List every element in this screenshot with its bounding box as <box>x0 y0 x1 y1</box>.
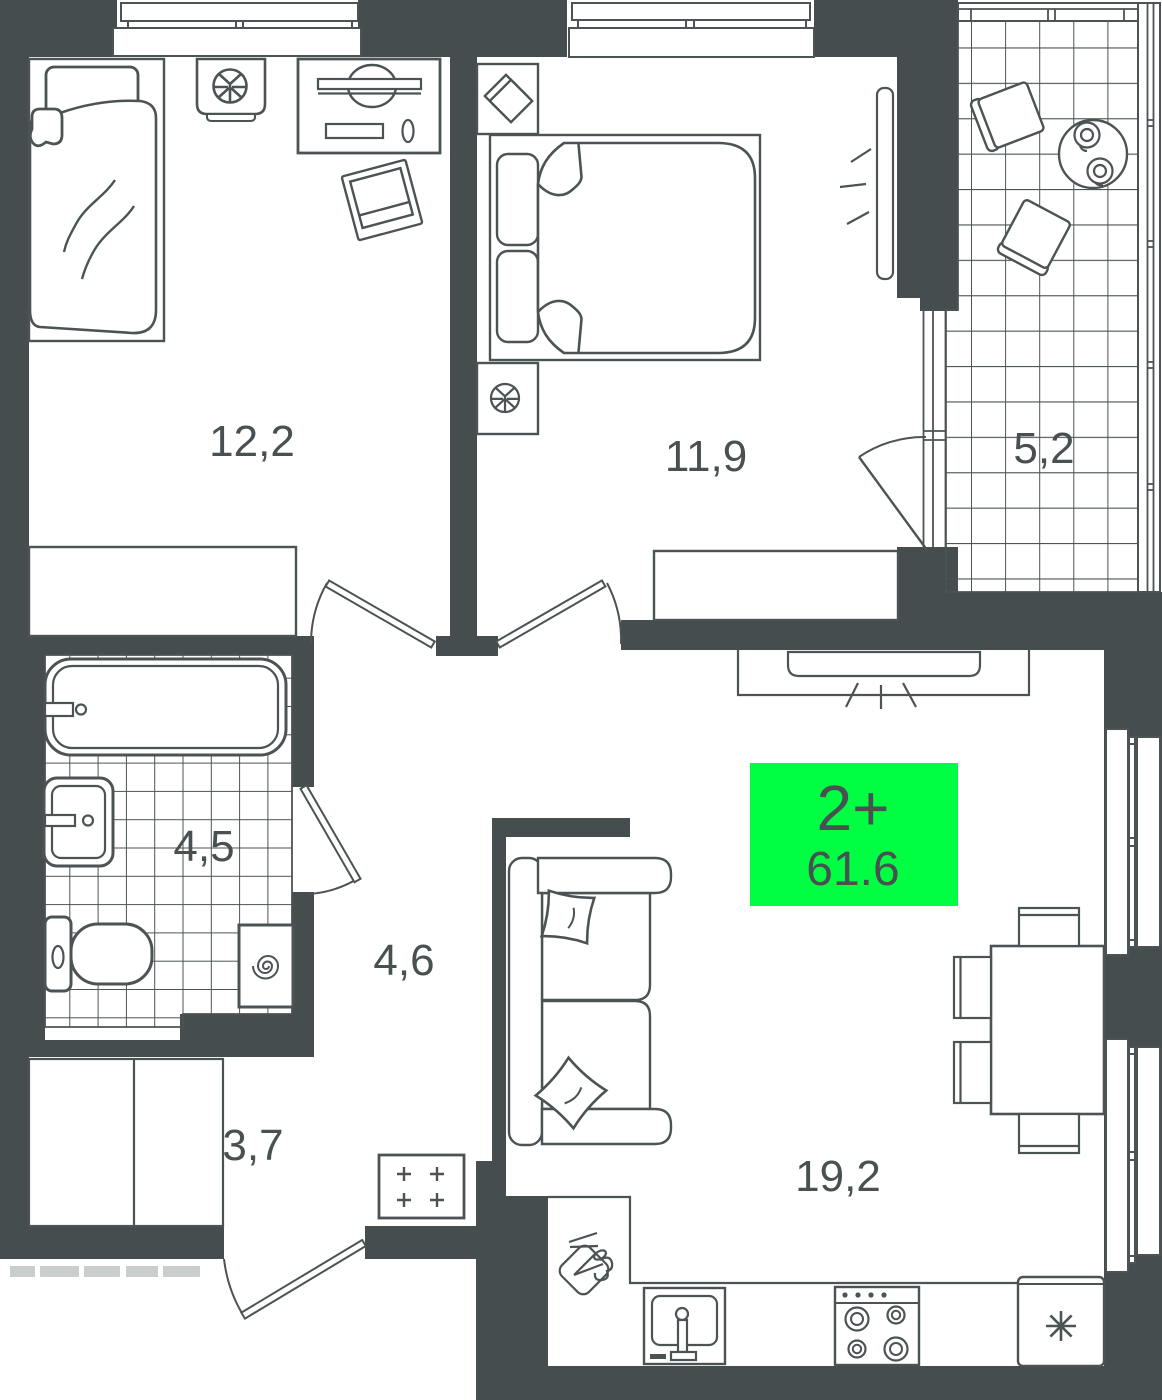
svg-text:19,2: 19,2 <box>795 1152 881 1201</box>
svg-text:4,5: 4,5 <box>173 822 234 871</box>
svg-text:5,2: 5,2 <box>1013 424 1074 473</box>
svg-text:61.6: 61.6 <box>806 843 899 896</box>
svg-text:2+: 2+ <box>817 772 890 844</box>
svg-text:3,7: 3,7 <box>222 1121 283 1170</box>
svg-text:4,6: 4,6 <box>373 936 434 985</box>
svg-text:11,9: 11,9 <box>665 432 747 481</box>
svg-text:12,2: 12,2 <box>209 417 295 466</box>
